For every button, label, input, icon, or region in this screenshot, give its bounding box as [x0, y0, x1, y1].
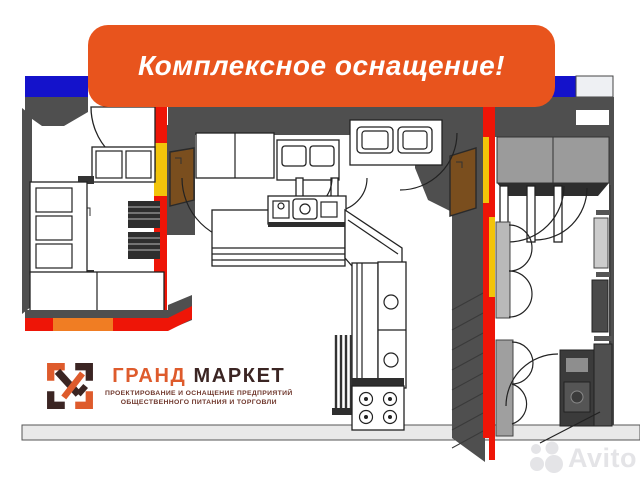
advert-page: Комплексное оснащение! ГРАНД МАРКЕТ ПРОЕ… — [0, 0, 640, 479]
serving-counter — [212, 196, 406, 388]
avito-watermark: Avito — [527, 441, 637, 475]
logo-title-market: МАРКЕТ — [194, 365, 286, 387]
grand-market-logo-icon — [46, 362, 94, 410]
promo-banner-text: Комплексное оснащение! — [138, 50, 505, 82]
promo-banner: Комплексное оснащение! — [88, 25, 555, 107]
logo-subtitle-line2: ОБЩЕСТВЕННОГО ПИТАНИЯ И ТОРГОВЛИ — [105, 399, 293, 408]
right-partition — [450, 107, 495, 462]
door-swing-arc — [506, 354, 558, 406]
shelf-arc — [509, 271, 532, 317]
shelf-unit — [128, 232, 160, 259]
watermark-text: Avito — [568, 443, 637, 474]
shelf-arc — [512, 342, 533, 384]
door-left — [170, 148, 194, 206]
shelf-unit — [128, 201, 160, 228]
floor-strip — [22, 425, 640, 440]
shelf-arc — [512, 384, 527, 424]
logo-subtitle-line1: ПРОЕКТИРОВАНИЕ И ОСНАЩЕНИЕ ПРЕДПРИЯТИЙ — [105, 390, 293, 399]
display-case — [30, 182, 87, 274]
logo-text-block: ГРАНД МАРКЕТ ПРОЕКТИРОВАНИЕ И ОСНАЩЕНИЕ … — [105, 365, 293, 407]
door-right — [450, 148, 476, 216]
logo-title-grand: ГРАНД — [112, 365, 186, 387]
avito-logo-icon — [527, 441, 564, 475]
logo-title: ГРАНД МАРКЕТ — [112, 365, 285, 387]
company-logo: ГРАНД МАРКЕТ ПРОЕКТИРОВАНИЕ И ОСНАЩЕНИЕ … — [46, 362, 293, 410]
logo-subtitle: ПРОЕКТИРОВАНИЕ И ОСНАЩЕНИЕ ПРЕДПРИЯТИЙ О… — [105, 390, 293, 407]
right-room — [496, 137, 612, 443]
